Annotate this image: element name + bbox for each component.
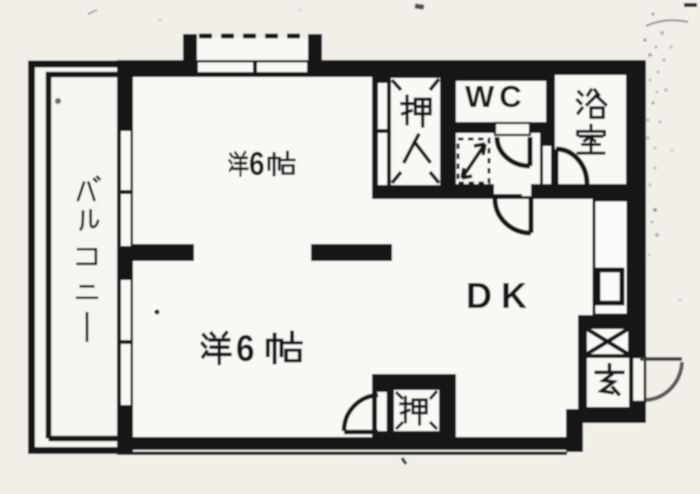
svg-text:6: 6: [249, 146, 265, 183]
svg-text:6: 6: [236, 328, 255, 369]
svg-text:WC: WC: [465, 79, 527, 114]
svg-text:DK: DK: [466, 275, 536, 316]
